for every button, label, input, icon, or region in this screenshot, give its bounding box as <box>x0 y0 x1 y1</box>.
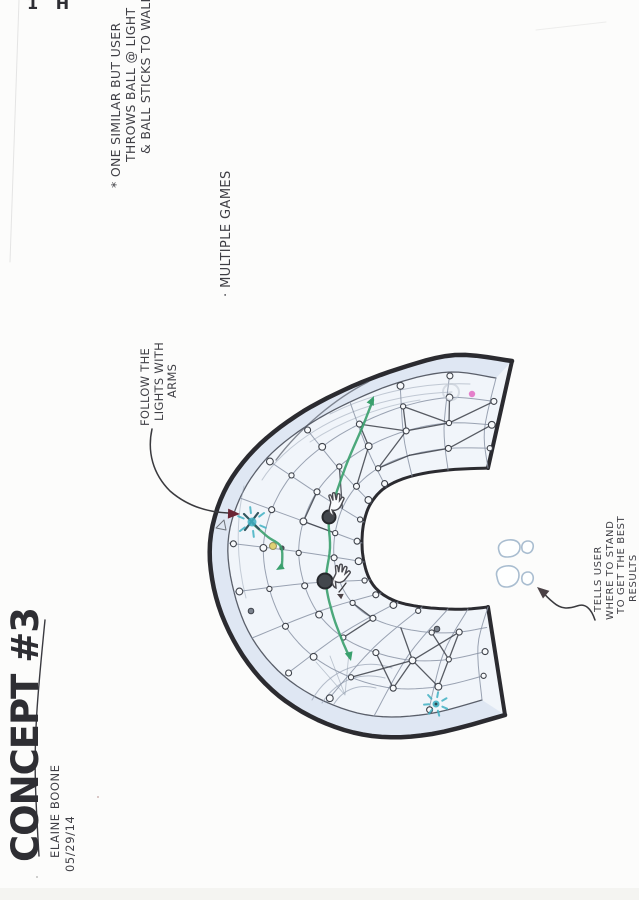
follow-line-1: FOLLOW THE <box>139 342 153 426</box>
multiple-games-note: · MULTIPLE GAMES <box>219 170 234 297</box>
stand-line-4: RESULTS <box>628 516 639 620</box>
stand-arrow <box>537 587 595 620</box>
stand-line-2: WHERE TO STAND <box>605 516 617 620</box>
follow-lights-label: FOLLOW THE LIGHTS WITH ARMS <box>139 342 180 426</box>
side-note-line-3: & BALL STICKS TO WALL <box>138 0 153 188</box>
scanned-sketch-page: CONCEPT #3 ELAINE BOONE 05/29/14 * ONE S… <box>0 0 639 900</box>
page-title: CONCEPT #3 <box>4 608 48 862</box>
side-note-line-1: * ONE SIMILAR BUT USER <box>108 0 123 188</box>
stand-here-label: TELLS USER WHERE TO STAND TO GET THE BES… <box>593 516 639 620</box>
stand-line-3: TO GET THE BEST <box>616 516 628 620</box>
footprints-icon <box>496 540 533 587</box>
concept-sketch-drawing <box>0 0 639 900</box>
sketch-date: 05/29/14 <box>63 816 77 872</box>
side-note-line-2: THROWS BALL @ LIGHT <box>123 0 138 188</box>
yellow-light-dot <box>270 543 277 550</box>
side-note: * ONE SIMILAR BUT USER THROWS BALL @ LIG… <box>108 0 153 188</box>
follow-line-3: ARMS <box>166 342 180 426</box>
author-name: ELAINE BOONE <box>48 764 62 858</box>
follow-line-2: LIGHTS WITH <box>153 342 167 426</box>
light-ball-2 <box>318 574 333 589</box>
stand-line-1: TELLS USER <box>593 516 605 620</box>
pink-light-dot <box>469 391 475 397</box>
margin-mark: 1 H <box>27 0 75 13</box>
